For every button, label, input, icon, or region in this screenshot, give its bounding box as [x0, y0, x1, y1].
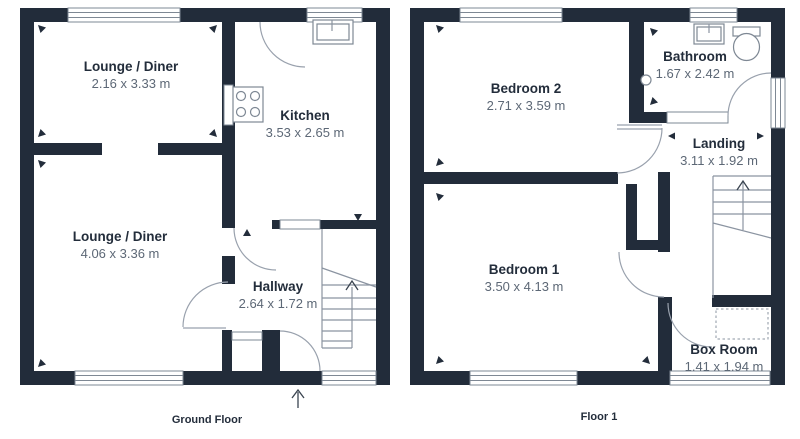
- door-threshold: [280, 220, 320, 229]
- floor-caption-floor-1: Floor 1: [519, 411, 679, 423]
- sink-icon: [313, 20, 353, 44]
- door-threshold: [667, 112, 728, 123]
- plan-floor-1: [410, 8, 785, 385]
- toilet-icon: [733, 27, 760, 61]
- front-door-arc: [280, 331, 320, 371]
- boxroom-door-arc: [668, 303, 712, 347]
- radiator-dial-icon: [641, 75, 651, 85]
- sink-icon: [694, 24, 724, 44]
- wall-niche: [224, 85, 233, 125]
- entrance-arrow: [292, 390, 304, 408]
- bedroom2-door-arc: [617, 128, 662, 173]
- dimension-markers: [38, 25, 362, 367]
- lounge-door-arc: [183, 282, 228, 327]
- window: [470, 371, 577, 385]
- window: [322, 371, 376, 385]
- window: [771, 78, 785, 128]
- back-door-arc: [260, 22, 305, 67]
- interior-walls: [424, 22, 771, 371]
- floor-caption-ground-floor: Ground Floor: [127, 414, 287, 426]
- floorplan-page: Lounge / Diner 2.16 x 3.33 m Kitchen 3.5…: [0, 0, 800, 439]
- floorplan-canvas: [0, 0, 800, 439]
- staircase-floor1: [713, 176, 771, 298]
- window: [460, 8, 562, 22]
- window: [75, 371, 183, 385]
- kitchen-door-arc: [234, 228, 276, 270]
- window: [690, 8, 737, 22]
- bedroom1-door-arc: [619, 252, 664, 297]
- windows: [460, 8, 785, 385]
- loft-hatch: [716, 309, 768, 339]
- doors: [183, 22, 320, 371]
- plan-ground-floor: [20, 8, 390, 408]
- staircase-ground: [322, 229, 376, 348]
- window: [68, 8, 180, 22]
- door-threshold: [232, 332, 262, 340]
- window: [670, 371, 770, 385]
- hob-icon: [233, 87, 263, 122]
- outer-walls: [410, 8, 785, 385]
- dimension-markers: [436, 25, 764, 364]
- interior-walls: [34, 22, 376, 371]
- bathroom-door-arc: [728, 73, 771, 116]
